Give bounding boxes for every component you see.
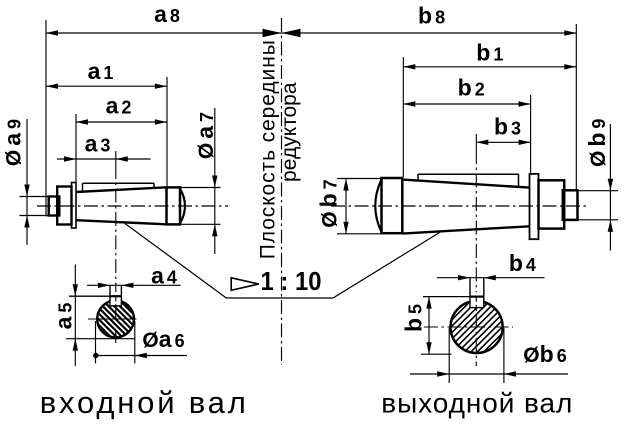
svg-text:Øb6: Øb6 <box>523 341 566 367</box>
svg-text:b2: b2 <box>458 75 485 101</box>
svg-text:b3: b3 <box>494 114 521 140</box>
svg-text:Øa9: Øa9 <box>0 119 26 166</box>
svg-text:b5: b5 <box>401 304 427 332</box>
svg-text:a5: a5 <box>51 303 77 330</box>
svg-text:b1: b1 <box>476 39 503 65</box>
svg-text:a2: a2 <box>106 93 132 119</box>
svg-text:Øa6: Øa6 <box>142 326 184 352</box>
svg-text:Øb9: Øb9 <box>584 119 610 167</box>
svg-text:a8: a8 <box>154 1 180 27</box>
svg-text:входной вал: входной вал <box>40 385 246 420</box>
svg-text:редуктора: редуктора <box>278 82 301 182</box>
svg-text:выходной вал: выходной вал <box>381 388 572 419</box>
svg-text:b4: b4 <box>509 250 536 276</box>
svg-text:a3: a3 <box>85 131 111 157</box>
svg-text:a4: a4 <box>151 263 177 289</box>
svg-text:1 : 10: 1 : 10 <box>261 266 322 296</box>
svg-text:b8: b8 <box>418 3 445 29</box>
svg-text:Øb7: Øb7 <box>316 179 342 227</box>
svg-text:a1: a1 <box>88 58 114 84</box>
svg-text:Плоскость середины: Плоскость середины <box>257 40 280 259</box>
svg-text:Øa7: Øa7 <box>192 112 218 159</box>
